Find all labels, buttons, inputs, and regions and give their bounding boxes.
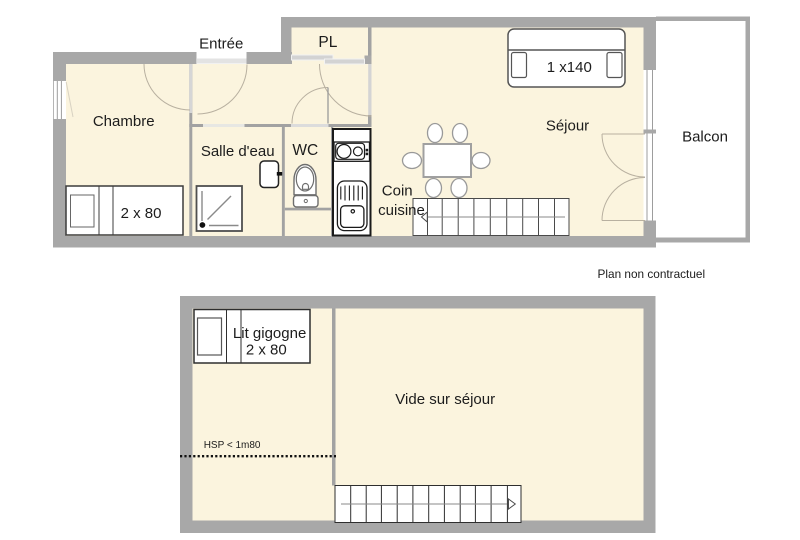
svg-text:Lit gigogne: Lit gigogne	[233, 325, 306, 342]
svg-text:Vide sur séjour: Vide sur séjour	[395, 391, 495, 408]
svg-text:WC: WC	[292, 142, 318, 159]
svg-text:Coin: Coin	[382, 183, 413, 200]
svg-text:PL: PL	[318, 34, 337, 51]
svg-text:Balcon: Balcon	[682, 129, 728, 146]
svg-text:2 x 80: 2 x 80	[246, 341, 287, 358]
svg-text:Entrée: Entrée	[199, 36, 243, 53]
svg-text:Chambre: Chambre	[93, 113, 155, 130]
svg-text:Plan non contractuel: Plan non contractuel	[598, 267, 706, 281]
svg-text:2 x 80: 2 x 80	[121, 205, 162, 222]
svg-text:1 x140: 1 x140	[547, 59, 592, 76]
svg-text:cuisine: cuisine	[378, 202, 425, 219]
svg-text:Séjour: Séjour	[546, 118, 589, 135]
svg-text:Salle d'eau: Salle d'eau	[201, 143, 275, 160]
svg-text:HSP < 1m80: HSP < 1m80	[204, 440, 261, 451]
